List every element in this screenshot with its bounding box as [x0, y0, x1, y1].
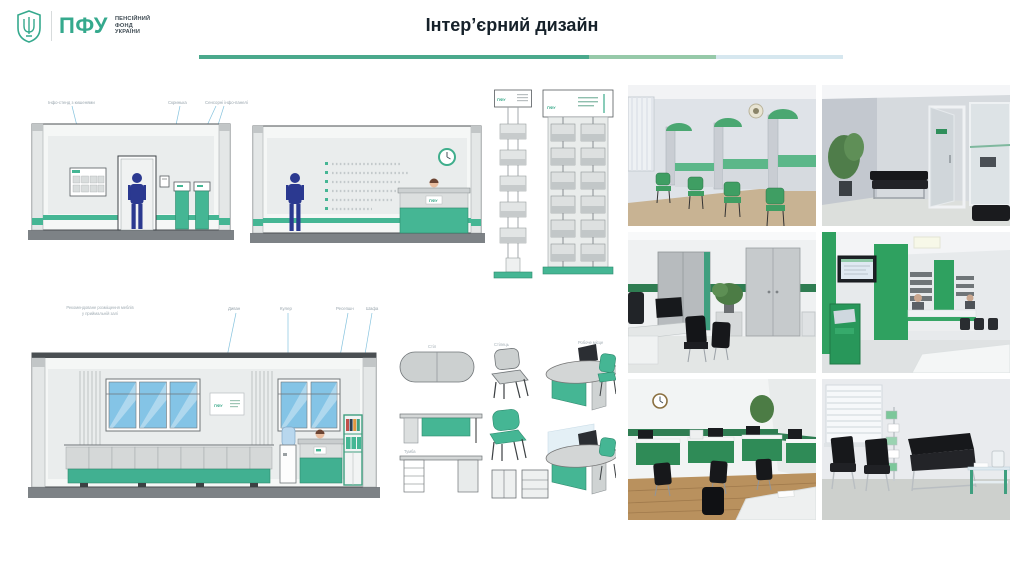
wall-clock-icon — [439, 149, 455, 165]
photo-office-cabinets — [628, 232, 816, 373]
page-title: Інтер’єрний дизайн — [0, 15, 1024, 36]
label-cooler: Кулер — [280, 306, 292, 311]
window-group — [278, 379, 340, 431]
floor — [250, 233, 485, 243]
workstation-3d — [545, 344, 616, 410]
cabinet-front — [522, 470, 548, 498]
pilaster-cap — [219, 124, 230, 131]
slide: ПФУ ПЕНСІЙНИЙ ФОНД УКРАЇНИ Інтер’єрний д… — [0, 0, 1024, 576]
water-cooler — [280, 427, 296, 483]
label-info-stand: Інфо-стенд з кишенями — [48, 100, 95, 105]
cabinet-front — [492, 470, 516, 498]
glass-wall — [970, 103, 1010, 205]
label-workstation: Робоче місце — [578, 340, 604, 345]
pilaster-base — [253, 219, 263, 226]
pilaster-left — [32, 124, 43, 230]
wall-tv — [838, 256, 876, 282]
stand-sign-text: ПФУ — [547, 105, 556, 110]
stand-sign-text: ПФУ — [497, 97, 506, 102]
pockets — [500, 124, 526, 243]
rule-segment-mid — [589, 55, 716, 59]
desk-front-view — [400, 414, 482, 443]
window-group — [106, 379, 200, 431]
pilaster-base — [32, 218, 43, 225]
pilaster-left — [32, 358, 45, 487]
green-column — [874, 244, 908, 340]
drawing-lobby-elevation: Інфо-стенд з кишенями Скринька Сенсорні … — [28, 92, 260, 244]
photo-grid — [628, 85, 1010, 520]
stand-base — [543, 267, 613, 274]
table-mirror — [992, 451, 1004, 467]
note-line1: Рекомендоване розміщення меблів — [66, 305, 133, 310]
photo-waiting-area — [822, 379, 1010, 520]
pilaster-cap — [471, 126, 481, 133]
pilaster-right — [363, 358, 376, 487]
suggestion-box — [160, 176, 169, 187]
title-rule — [199, 55, 843, 59]
label-sofa: Диван — [228, 306, 241, 311]
plant — [750, 395, 774, 423]
rule-segment-light — [716, 55, 843, 59]
rule-segment-dark — [199, 55, 589, 59]
pilaster-base — [471, 219, 481, 226]
pilaster-left — [253, 126, 263, 233]
label-reception: Ресепшн — [336, 306, 354, 311]
bench-row — [64, 445, 274, 487]
brochure-stand-side: ПФУ — [493, 88, 533, 284]
window-with-blinds — [824, 385, 884, 447]
workstation-3d-with-screen — [545, 424, 616, 494]
note-line2: у приймальній залі — [82, 311, 118, 316]
pilaster-cap — [32, 358, 45, 367]
pfu-wall-sign: ПФУ — [210, 393, 244, 415]
photo-service-booths — [628, 85, 816, 226]
drawing-reception-elevation: ПФУ — [250, 98, 485, 245]
label-info-panels: Сенсорні інфо-панелі — [205, 100, 248, 105]
pilaster-right — [471, 126, 481, 233]
black-bench — [972, 205, 1010, 221]
pilaster-right — [219, 124, 230, 230]
photo-office-desks — [628, 379, 816, 520]
label-table: Стіл — [428, 344, 437, 349]
ceiling-beam — [32, 353, 376, 358]
floor — [28, 230, 234, 240]
pilaster-cap — [253, 126, 263, 133]
touch-kiosk — [194, 182, 210, 229]
brochure-stand-front: ПФУ — [541, 88, 615, 284]
drawer-desk — [400, 456, 482, 492]
label-cabinet: Тумба — [404, 449, 416, 454]
label-box: Скринька — [168, 100, 187, 105]
touch-kiosk — [174, 182, 190, 229]
desk-sign-text: ПФУ — [429, 198, 438, 203]
label-cabinet: Шафа — [366, 306, 379, 311]
pilaster-cap — [363, 358, 376, 367]
bookshelf — [344, 415, 362, 485]
cabinet — [746, 248, 800, 336]
label-chair: Стілець — [494, 342, 509, 347]
stand-base — [494, 272, 532, 278]
info-stand — [70, 168, 106, 196]
wall-clock-icon — [653, 394, 667, 408]
chair-sketch-green — [490, 409, 526, 461]
radiator — [802, 312, 815, 336]
wall-sign-text: ПФУ — [214, 403, 223, 408]
floor — [28, 487, 380, 498]
pilaster-base — [219, 218, 230, 225]
pilaster-cap — [32, 124, 43, 131]
chair-row — [960, 318, 998, 330]
drawing-hall-elevation: Рекомендоване розміщення меблів у прийма… — [28, 297, 380, 509]
chair-sketch-gray — [492, 348, 528, 399]
photo-green-hall — [822, 232, 1010, 373]
chair-back — [702, 487, 724, 515]
furniture-sketches: Стіл Тумба Стілець — [392, 336, 616, 504]
info-kiosk — [830, 304, 860, 364]
photo-entrance-lobby — [822, 85, 1010, 226]
